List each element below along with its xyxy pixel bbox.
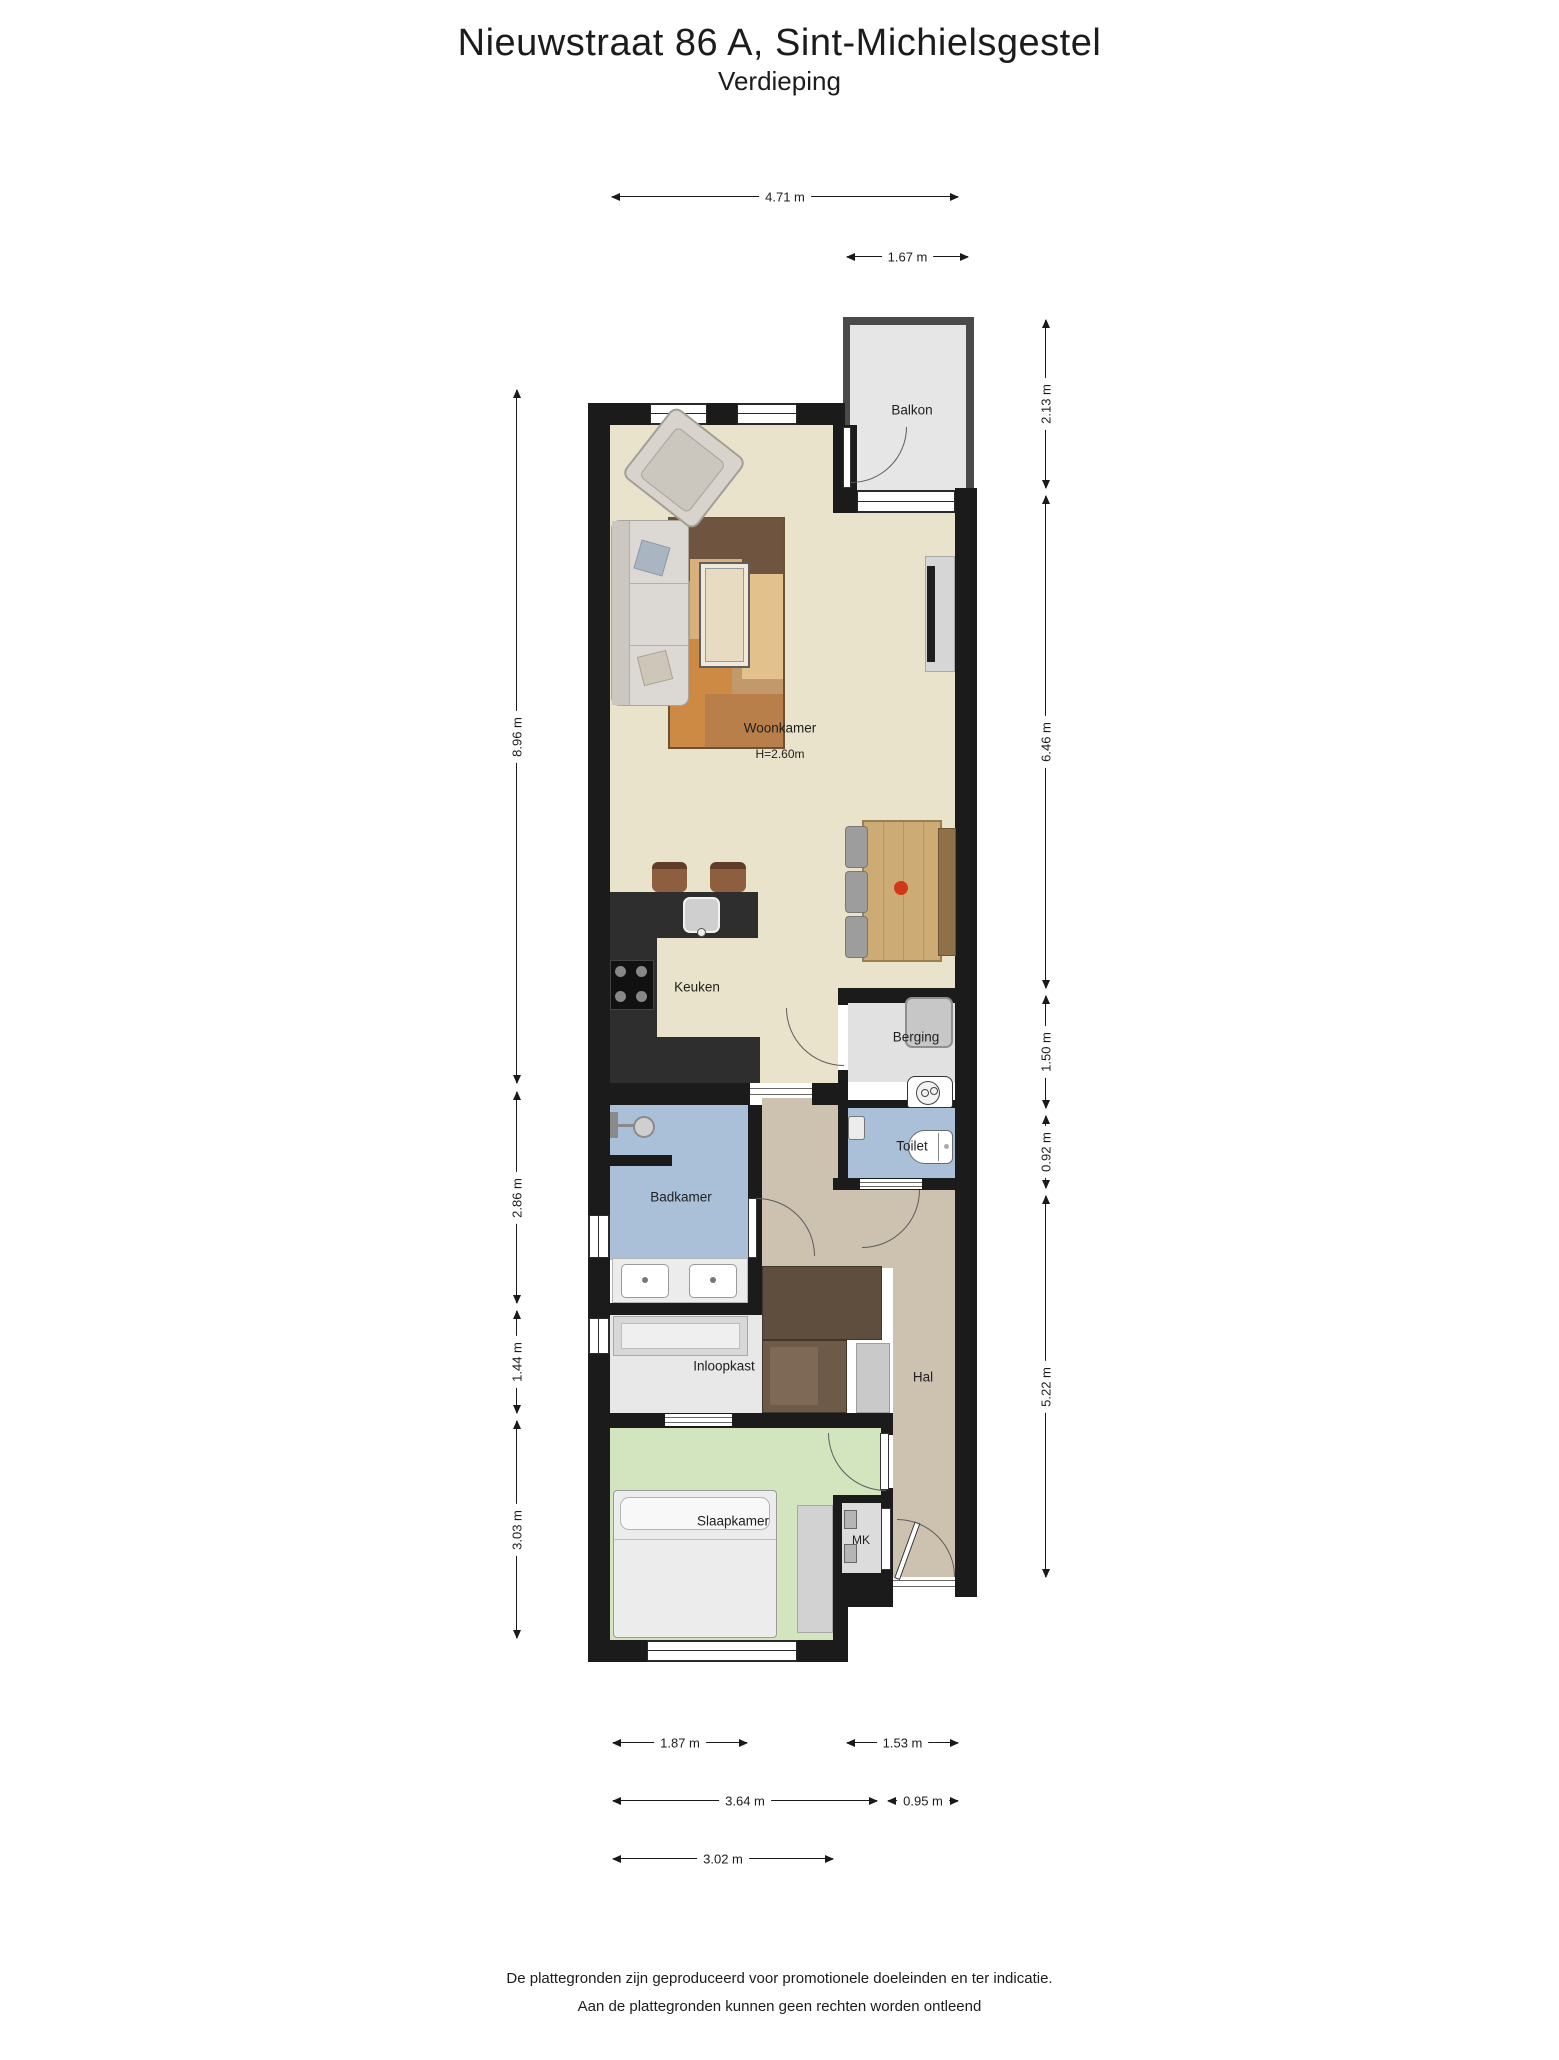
wall-segment	[848, 1582, 893, 1607]
boiler-dial-dot	[921, 1089, 929, 1097]
room-label-slaapkamer: Slaapkamer	[697, 1514, 769, 1529]
dimension-value: 1.87 m	[654, 1736, 706, 1751]
dimension-bottom-3: 3.64 m	[613, 1800, 877, 1801]
floor-plan: Balkon Woonkamer H=2.60m Keuken Berging …	[0, 0, 1559, 2060]
toilet-seat-line	[938, 1133, 939, 1161]
hall-cabinet	[856, 1343, 890, 1413]
bathroom-floor	[610, 1105, 750, 1260]
table-plank-line	[923, 822, 924, 960]
wardrobe	[762, 1266, 882, 1340]
dimension-value: 5.22 m	[1039, 1361, 1054, 1413]
room-label-balkon: Balkon	[891, 403, 932, 418]
wall-segment	[707, 403, 737, 425]
dimension-bottom-1: 1.87 m	[613, 1742, 747, 1743]
kitchen-counter	[610, 1037, 760, 1083]
stove-burner	[636, 966, 647, 977]
balcony-door-leaf	[843, 427, 851, 488]
room-label-inloopkast: Inloopkast	[693, 1359, 755, 1374]
meter-closet-door	[881, 1508, 891, 1570]
dimension-value: 2.13 m	[1039, 378, 1054, 430]
wall-segment	[955, 488, 977, 1597]
coffee-table-inner	[705, 568, 744, 662]
wardrobe-shelf	[770, 1347, 818, 1405]
dimension-bottom-5: 3.02 m	[613, 1858, 833, 1859]
dimension-value: 0.92 m	[1039, 1126, 1054, 1178]
sofa	[611, 520, 689, 706]
dimension-right-1: 2.13 m	[1045, 320, 1046, 488]
hand-basin	[848, 1116, 865, 1140]
dimension-value: 3.02 m	[697, 1852, 749, 1867]
room-height-label: H=2.60m	[755, 747, 804, 761]
dining-bench	[938, 828, 956, 956]
bedroom-side-cabinet	[797, 1505, 833, 1633]
wall-segment	[797, 403, 845, 425]
dimension-right-3: 1.50 m	[1045, 996, 1046, 1108]
dimension-left-3: 1.44 m	[516, 1311, 517, 1413]
window	[588, 1318, 610, 1354]
dimension-left-4: 3.03 m	[516, 1421, 517, 1638]
dimension-top-1: 4.71 m	[612, 196, 958, 197]
faucet-icon	[642, 1277, 648, 1283]
blanket-line	[614, 1539, 776, 1540]
room-label-keuken: Keuken	[674, 980, 720, 995]
room-label-woonkamer: Woonkamer	[744, 721, 817, 736]
closet-bedroom-threshold	[665, 1414, 732, 1426]
footer-disclaimer-line1: De plattegronden zijn geproduceerd voor …	[0, 1970, 1559, 1987]
window	[737, 403, 797, 425]
wall-segment	[812, 1083, 848, 1105]
bar-stool	[652, 862, 687, 892]
dimension-value: 6.46 m	[1039, 716, 1054, 768]
dining-chair	[845, 916, 868, 958]
dimension-value: 8.96 m	[510, 711, 525, 763]
sofa-pillow	[637, 650, 673, 686]
dimension-left-1: 8.96 m	[516, 390, 517, 1083]
wall-segment	[588, 1083, 750, 1105]
toilet-door-threshold	[860, 1179, 922, 1189]
dimension-value: 3.03 m	[510, 1504, 525, 1556]
dimension-value: 1.67 m	[882, 250, 934, 265]
meter-box	[844, 1510, 857, 1529]
window	[588, 1215, 610, 1258]
boiler-dial-dot	[930, 1087, 938, 1095]
coffee-table	[699, 562, 750, 668]
room-label-hal: Hal	[913, 1370, 933, 1385]
dining-chair	[845, 871, 868, 913]
sofa-backrest	[612, 521, 630, 705]
dimension-value: 1.44 m	[510, 1336, 525, 1388]
shower-head	[633, 1116, 655, 1138]
window	[857, 490, 955, 513]
stove-burner	[636, 991, 647, 1002]
wall-segment	[588, 403, 610, 1662]
faucet-icon	[710, 1277, 716, 1283]
room-label-toilet: Toilet	[896, 1139, 928, 1154]
room-label-badkamer: Badkamer	[650, 1190, 712, 1205]
dimension-right-4: 0.92 m	[1045, 1116, 1046, 1188]
stove-burner	[615, 991, 626, 1002]
table-plank-line	[883, 822, 884, 960]
dimension-value: 4.71 m	[759, 190, 811, 205]
dimension-value: 1.50 m	[1039, 1026, 1054, 1078]
dimension-value: 3.64 m	[719, 1794, 771, 1809]
toilet-flush-button	[944, 1144, 949, 1149]
bed	[613, 1490, 777, 1638]
wall-segment	[833, 1582, 848, 1662]
wall-segment	[833, 490, 857, 513]
dresser-top	[621, 1323, 740, 1349]
dimension-value: 2.86 m	[510, 1172, 525, 1224]
room-label-berging: Berging	[893, 1030, 940, 1045]
dimension-bottom-2: 1.53 m	[847, 1742, 958, 1743]
window	[647, 1640, 797, 1662]
wall-segment	[588, 1303, 764, 1315]
dimension-left-2: 2.86 m	[516, 1092, 517, 1303]
dimension-bottom-4: 0.95 m	[888, 1800, 958, 1801]
sofa-cushion-line	[630, 583, 688, 584]
dimension-right-5: 5.22 m	[1045, 1196, 1046, 1577]
hall-floor	[762, 1098, 838, 1190]
dresser	[613, 1316, 748, 1356]
bar-stool	[710, 862, 746, 892]
kitchen-faucet	[697, 928, 706, 937]
table-bowl	[894, 881, 908, 895]
boiler	[907, 1076, 953, 1108]
vanity	[612, 1258, 748, 1303]
room-label-mk: MK	[852, 1533, 870, 1547]
front-door-threshold	[893, 1577, 955, 1590]
sofa-pillow	[633, 539, 670, 576]
wall-segment	[833, 1495, 842, 1582]
dimension-right-2: 6.46 m	[1045, 496, 1046, 988]
footer-disclaimer-line2: Aan de plattegronden kunnen geen rechten…	[0, 1998, 1559, 2015]
wall-segment	[588, 1413, 893, 1428]
dimension-value: 1.53 m	[877, 1736, 929, 1751]
balcony-wall	[966, 317, 974, 493]
shower-divider-wall	[610, 1155, 672, 1166]
bathroom-door-leaf	[748, 1198, 757, 1258]
balcony-wall	[843, 317, 974, 325]
stove-burner	[615, 966, 626, 977]
hall-threshold	[750, 1085, 812, 1098]
dimension-value: 0.95 m	[897, 1794, 949, 1809]
dining-chair	[845, 826, 868, 868]
tv-screen	[927, 566, 935, 662]
sofa-cushion-line	[630, 645, 688, 646]
dimension-top-2: 1.67 m	[847, 256, 968, 257]
